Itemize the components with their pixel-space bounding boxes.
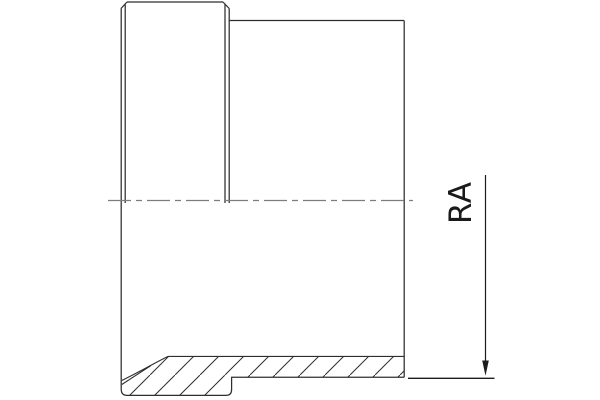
drawing-background <box>0 0 600 400</box>
pipe-fitting-half-section-drawing: RA <box>0 0 600 400</box>
surface-roughness-label: RA <box>443 182 479 225</box>
technical-drawing-canvas: RA <box>0 0 600 400</box>
